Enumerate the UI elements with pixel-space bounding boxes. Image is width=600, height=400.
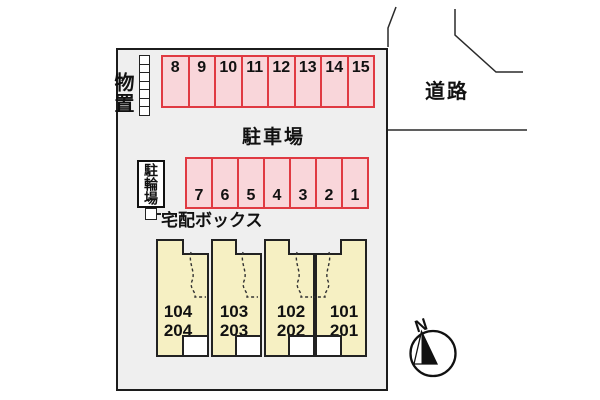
stair-notch — [235, 239, 262, 255]
parking-space: 12 — [267, 57, 294, 106]
parking-space: 15 — [347, 57, 374, 106]
road-boundary-line — [388, 7, 396, 47]
parking-row-upper: 8 9 10 11 12 13 14 15 — [161, 55, 375, 108]
stair-notch — [182, 239, 209, 255]
road-label: 道路 — [425, 75, 469, 104]
parking-space: 9 — [188, 57, 215, 106]
parking-space: 1 — [341, 159, 367, 207]
site-plan: 物置 8 9 10 11 12 13 14 15 駐車場 駐輪場 7 6 5 4… — [0, 0, 600, 400]
unit-entrance — [235, 335, 260, 355]
building-unit-102-202: 102 202 — [264, 239, 315, 357]
parking-space: 14 — [320, 57, 347, 106]
parking-space: 2 — [315, 159, 341, 207]
compass-needle-outline — [414, 332, 437, 365]
parking-space: 10 — [214, 57, 241, 106]
unit-entrance — [288, 335, 313, 355]
road-boundary-line — [455, 9, 523, 72]
unit-entrance — [182, 335, 207, 355]
parking-space: 3 — [289, 159, 315, 207]
compass: N — [411, 315, 456, 376]
parking-space: 13 — [294, 57, 321, 106]
parking-space: 4 — [263, 159, 289, 207]
parking-space: 6 — [211, 159, 237, 207]
compass-circle — [411, 331, 456, 376]
property-parcel: 物置 8 9 10 11 12 13 14 15 駐車場 駐輪場 7 6 5 4… — [116, 48, 388, 391]
delivery-box-label: 宅配ボックス — [161, 206, 263, 231]
parking-space: 5 — [237, 159, 263, 207]
storage-label: 物置 — [112, 72, 132, 114]
storage-locker-column — [139, 55, 150, 116]
unit-entrance — [317, 335, 342, 355]
stair-notch — [315, 239, 342, 255]
building-unit-104-204: 104 204 — [156, 239, 209, 357]
parking-lot-label: 駐車場 — [242, 122, 305, 149]
stair-notch — [288, 239, 315, 255]
building-unit-101-201: 101 201 — [315, 239, 367, 357]
storage-cell — [139, 106, 150, 116]
bicycle-parking-label: 駐輪場 — [144, 163, 158, 205]
compass-north-label: N — [412, 315, 430, 337]
parking-space: 8 — [163, 57, 188, 106]
bicycle-parking-box: 駐輪場 — [137, 160, 165, 208]
delivery-box-icon — [145, 208, 157, 220]
parking-row-lower: 7 6 5 4 3 2 1 — [185, 157, 369, 209]
parking-space: 11 — [241, 57, 268, 106]
parking-space: 7 — [187, 159, 211, 207]
compass-needle — [422, 332, 438, 365]
building-unit-103-203: 103 203 — [211, 239, 262, 357]
